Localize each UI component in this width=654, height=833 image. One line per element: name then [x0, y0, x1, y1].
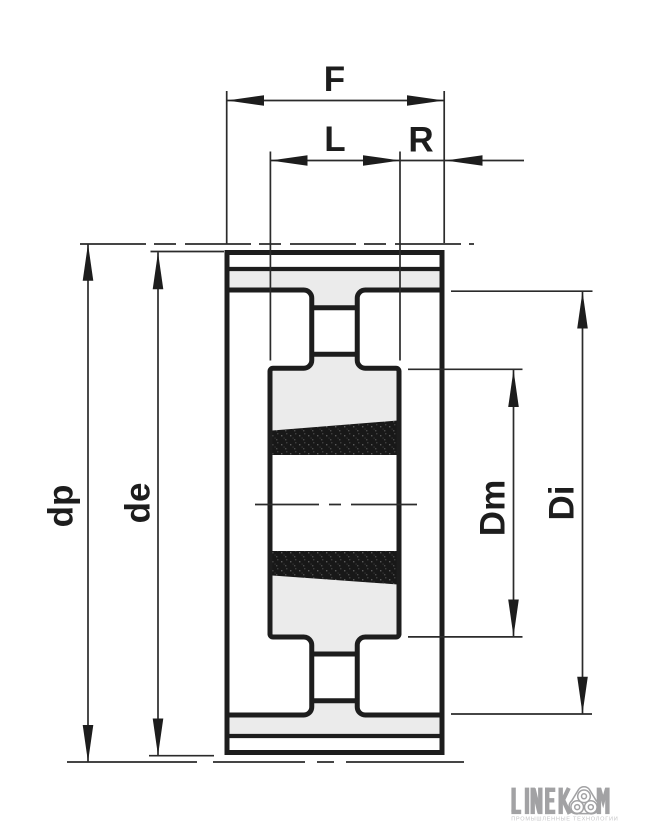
svg-text:ПРОМЫШЛЕННЫЕ ТЕХНОЛОГИИ: ПРОМЫШЛЕННЫЕ ТЕХНОЛОГИИ — [511, 816, 618, 822]
svg-text:F: F — [324, 60, 345, 99]
svg-text:R: R — [408, 121, 433, 160]
svg-text:L: L — [324, 120, 345, 159]
svg-text:dp: dp — [41, 485, 80, 528]
svg-text:de: de — [118, 483, 157, 524]
svg-text:Di: Di — [543, 486, 582, 521]
svg-text:Dm: Dm — [474, 480, 513, 536]
